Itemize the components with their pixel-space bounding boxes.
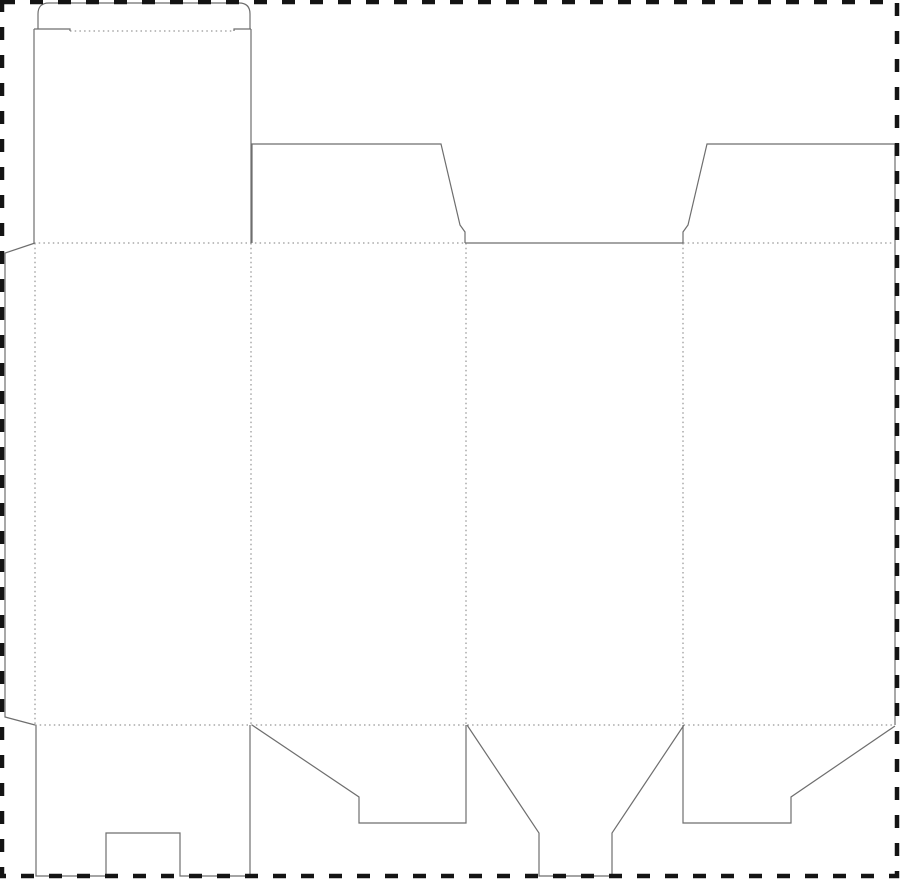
top-dust-flap-left-cut-line <box>252 144 465 243</box>
dieline-page <box>0 0 900 881</box>
bottom-flap-3-outline-cut-line <box>467 725 684 876</box>
glue-flap-outline-cut-line <box>5 243 35 725</box>
tuck-left-shoulder-cut-line <box>34 29 70 31</box>
top-dust-flap-right-cut-line <box>683 144 895 243</box>
tuck-flap-outline-cut-line <box>38 3 250 29</box>
bottom-flap-2-outline-cut-line <box>252 725 466 823</box>
bottom-flap-4-outline-cut-line <box>683 725 895 823</box>
bleed-border-dashed-outline <box>2 2 897 876</box>
bottom-flap-1-outline-cut-line <box>36 725 250 876</box>
dieline-lines <box>2 2 897 876</box>
box-dieline-drawing <box>0 0 900 881</box>
tuck-right-shoulder-cut-line <box>234 29 251 31</box>
